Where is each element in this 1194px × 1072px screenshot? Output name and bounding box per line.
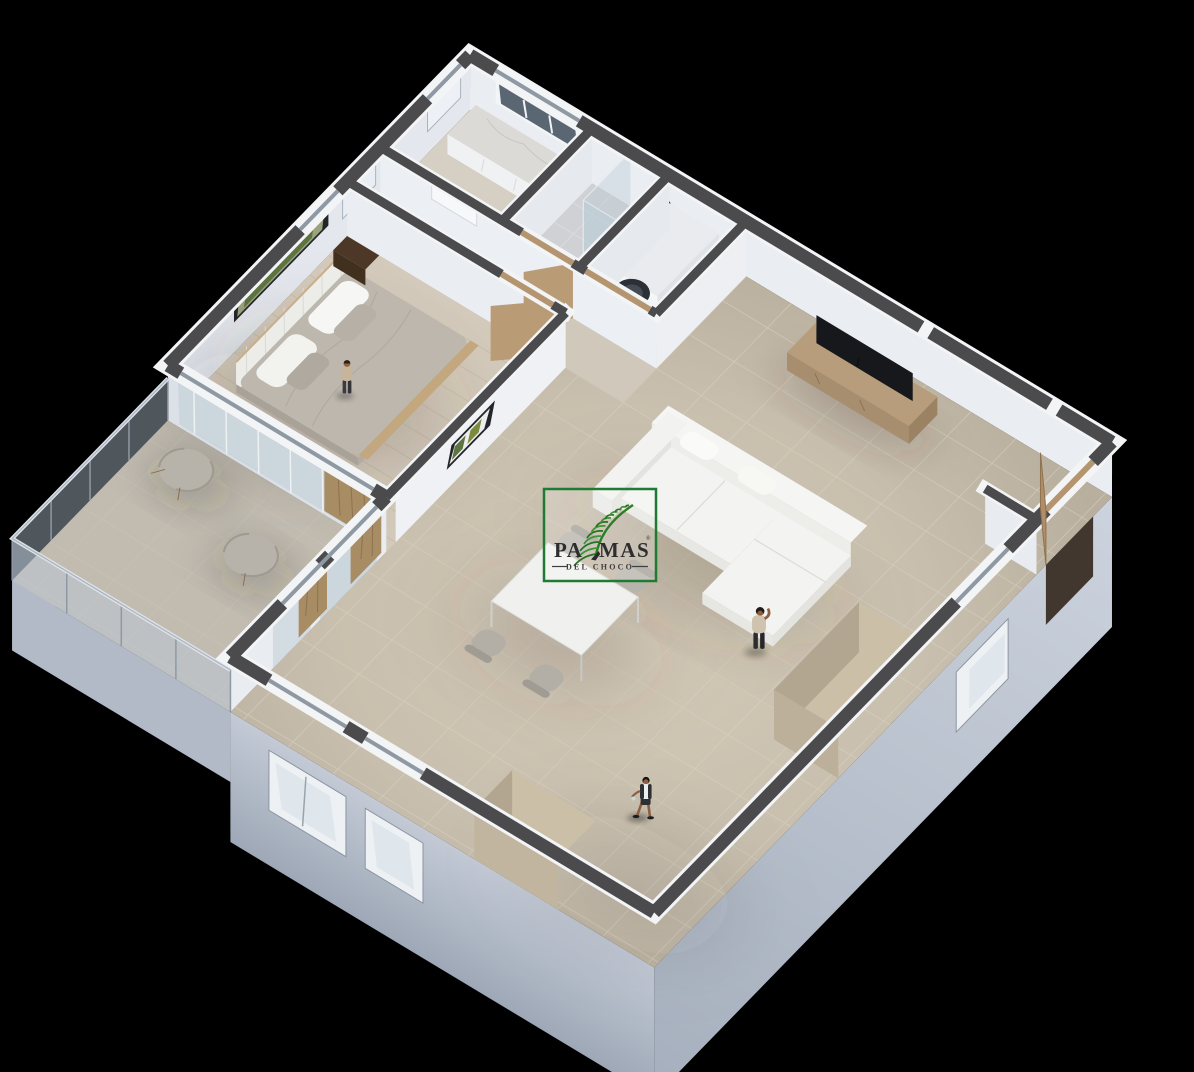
logo-brand-part2: MAS [599, 538, 650, 562]
floor-plan-render: PA MAS ® DEL CHOCO [0, 0, 1194, 1072]
logo-subtitle: DEL CHOCO [566, 563, 634, 572]
logo-brand-part1: PA [554, 538, 583, 562]
floor-plan-canvas: PA MAS ® DEL CHOCO [0, 0, 1194, 1072]
logo-registered-mark: ® [646, 535, 651, 542]
held-object [632, 797, 636, 801]
watermark-logo: PA MAS ® DEL CHOCO [544, 489, 656, 581]
